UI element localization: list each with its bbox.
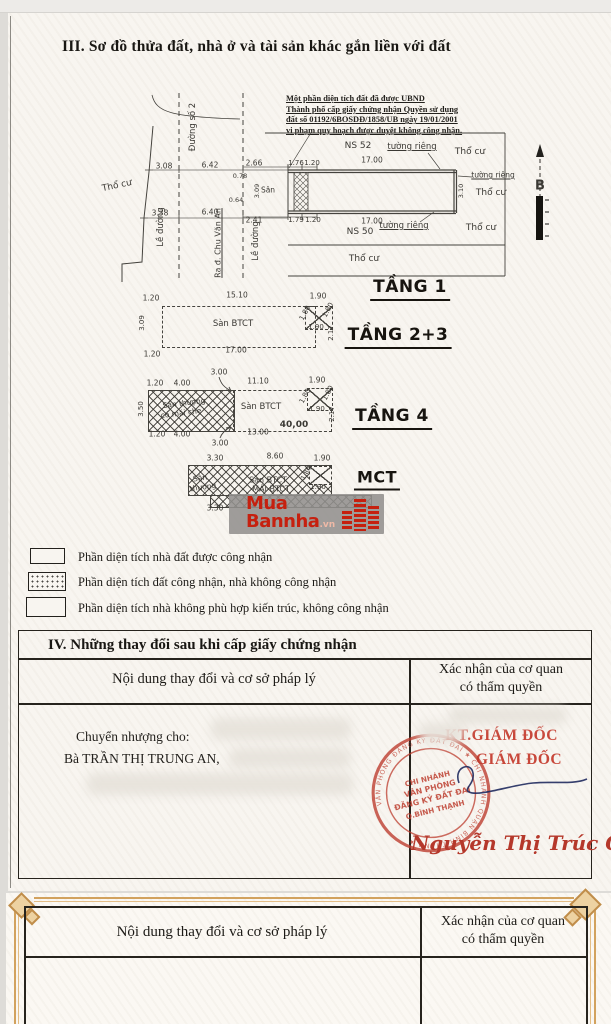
dimension-arrows [0,280,611,520]
watermark-logo-icon [342,499,379,531]
legend-swatch-recognized [30,548,65,564]
scanned-document: III. Sơ đồ thửa đất, nhà ở và tài sản kh… [0,0,611,1024]
transfer-name: Bà TRẦN THỊ TRUNG AN, [64,751,220,767]
watermark-text: Mua Bannha.vn [246,495,335,534]
legend-label: Phần diện tích nhà không phù hợp kiến tr… [78,601,389,616]
watermark: Mua Bannha.vn [229,494,384,534]
redaction-blur [229,748,351,768]
divider [19,703,591,705]
signature-stroke [441,753,591,798]
table-header-right-line2: có thẩm quyền [411,680,591,696]
ornament-border [14,905,16,1024]
ornament-border [594,905,596,1024]
watermark-suffix: .vn [319,520,335,530]
legend-swatch-land-only [28,572,66,591]
legend-label: Phần diện tích nhà đất được công nhận [78,550,272,565]
watermark-word2: Bannha [246,511,319,532]
table-header-left: Nội dung thay đổi và cơ sở pháp lý [19,671,409,688]
signer-name: Nguyễn Thị Trúc Cầm [411,831,591,855]
ornament-border [18,905,19,1024]
section4-title: IV. Những thay đổi sau khi cấp giấy chứn… [48,637,357,654]
page2-header-right-line2: có thẩm quyền [420,932,586,948]
ornament-border [34,897,574,899]
table-header-right-line1: Xác nhận của cơ quan [411,662,591,678]
redaction-blur [87,773,353,795]
ornament-border [34,901,574,902]
page2-table-right [586,906,588,1024]
divider [19,658,591,660]
redaction-blur [449,707,567,724]
transfer-label: Chuyển nhượng cho: [76,729,189,745]
page2-header-divider [24,956,588,958]
page-2 [6,893,611,1024]
page2-header-left: Nội dung thay đổi và cơ sở pháp lý [24,924,420,941]
page2-header-right-line1: Xác nhận của cơ quan [420,914,586,930]
legend-label: Phần diện tích đất công nhận, nhà không … [78,575,336,590]
page2-table-top [24,906,588,908]
legend-swatch-not-recognized [26,597,66,617]
redaction-blur [419,723,465,743]
section4-table: IV. Những thay đổi sau khi cấp giấy chứn… [18,630,592,879]
ornament-border [590,905,591,1024]
redaction-blur [211,718,351,740]
